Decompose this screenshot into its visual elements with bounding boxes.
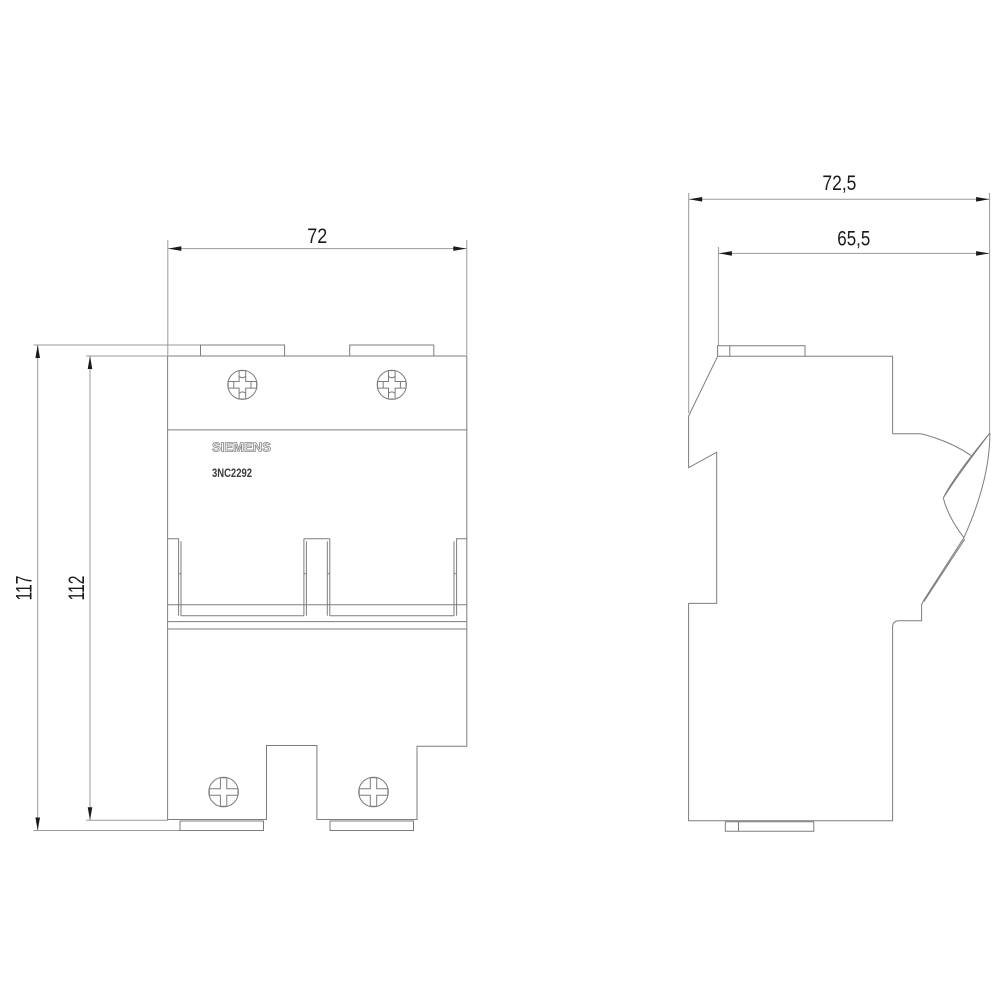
svg-text:112: 112: [64, 576, 89, 601]
svg-text:117: 117: [12, 576, 37, 601]
svg-text:65,5: 65,5: [837, 228, 870, 251]
svg-text:3NC2292: 3NC2292: [212, 466, 252, 480]
svg-text:SIEMENS: SIEMENS: [212, 441, 271, 455]
svg-text:72: 72: [307, 225, 327, 248]
svg-text:72,5: 72,5: [822, 172, 856, 195]
